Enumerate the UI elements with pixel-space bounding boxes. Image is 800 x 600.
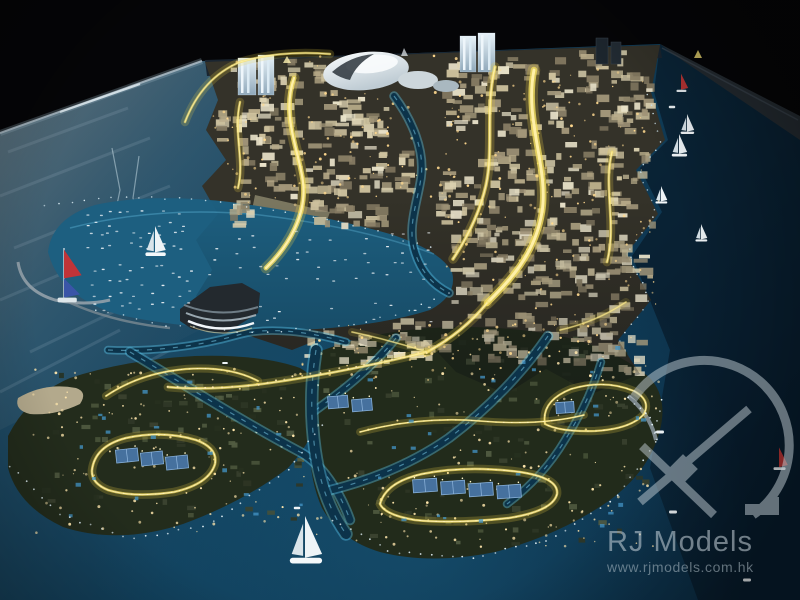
architectural-model-photo: RJ Models www.rjmodels.com.hk xyxy=(0,0,800,600)
photo-vignette xyxy=(0,0,800,600)
watermark-brand-text: RJ Models xyxy=(607,526,753,558)
watermark-url-text: www.rjmodels.com.hk xyxy=(606,559,754,575)
